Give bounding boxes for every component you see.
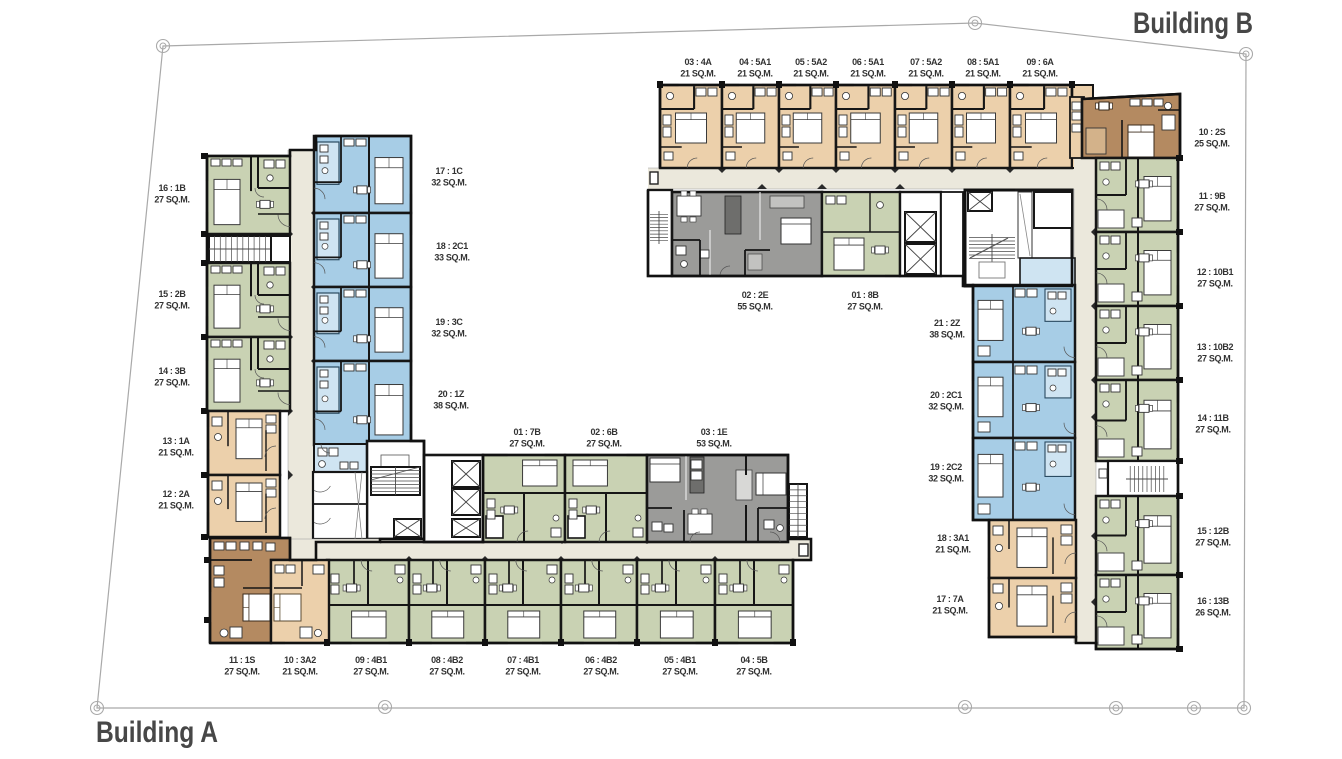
svg-text:07 : 4B1: 07 : 4B1 — [507, 655, 539, 665]
svg-text:19 : 2C2: 19 : 2C2 — [930, 462, 962, 472]
svg-text:27 SQ.M.: 27 SQ.M. — [1197, 354, 1232, 364]
svg-text:32 SQ.M.: 32 SQ.M. — [431, 329, 466, 339]
svg-text:32 SQ.M.: 32 SQ.M. — [928, 402, 963, 412]
svg-text:27 SQ.M.: 27 SQ.M. — [224, 667, 259, 677]
svg-text:01 : 7B: 01 : 7B — [513, 427, 541, 437]
svg-text:03 : 4A: 03 : 4A — [684, 57, 712, 67]
svg-text:11 : 9B: 11 : 9B — [1199, 191, 1226, 201]
svg-text:20 : 2C1: 20 : 2C1 — [930, 390, 962, 400]
svg-text:04 : 5B: 04 : 5B — [740, 655, 768, 665]
svg-text:Building A: Building A — [96, 716, 218, 749]
svg-text:27 SQ.M.: 27 SQ.M. — [505, 667, 540, 677]
svg-text:27 SQ.M.: 27 SQ.M. — [1195, 425, 1230, 435]
svg-text:32 SQ.M.: 32 SQ.M. — [431, 178, 466, 188]
svg-text:08 : 4B2: 08 : 4B2 — [431, 655, 463, 665]
svg-text:21 SQ.M.: 21 SQ.M. — [737, 69, 772, 79]
svg-text:09 : 6A: 09 : 6A — [1026, 57, 1054, 67]
svg-text:27 SQ.M.: 27 SQ.M. — [429, 667, 464, 677]
svg-text:55 SQ.M.: 55 SQ.M. — [737, 302, 772, 312]
svg-text:02 : 6B: 02 : 6B — [590, 427, 618, 437]
svg-text:21 SQ.M.: 21 SQ.M. — [965, 69, 1000, 79]
svg-text:21 SQ.M.: 21 SQ.M. — [680, 69, 715, 79]
svg-text:21 : 2Z: 21 : 2Z — [934, 318, 961, 328]
svg-text:27 SQ.M.: 27 SQ.M. — [736, 667, 771, 677]
svg-text:26 SQ.M.: 26 SQ.M. — [1195, 608, 1230, 618]
svg-text:Building B: Building B — [1133, 7, 1253, 40]
svg-text:14 : 11B: 14 : 11B — [1197, 413, 1229, 423]
svg-text:32 SQ.M.: 32 SQ.M. — [928, 474, 963, 484]
svg-text:21 SQ.M.: 21 SQ.M. — [158, 501, 193, 511]
svg-text:20 : 1Z: 20 : 1Z — [438, 389, 465, 399]
svg-text:21 SQ.M.: 21 SQ.M. — [908, 69, 943, 79]
svg-text:06 : 5A1: 06 : 5A1 — [852, 57, 884, 67]
svg-text:27 SQ.M.: 27 SQ.M. — [154, 301, 189, 311]
svg-text:12 : 2A: 12 : 2A — [162, 489, 190, 499]
svg-text:17 : 1C: 17 : 1C — [435, 166, 463, 176]
svg-text:21 SQ.M.: 21 SQ.M. — [935, 545, 970, 555]
svg-text:21 SQ.M.: 21 SQ.M. — [158, 448, 193, 458]
svg-text:19 : 3C: 19 : 3C — [435, 317, 463, 327]
svg-text:03 : 1E: 03 : 1E — [701, 427, 728, 437]
svg-text:27 SQ.M.: 27 SQ.M. — [847, 302, 882, 312]
svg-text:05 : 5A2: 05 : 5A2 — [795, 57, 827, 67]
svg-text:27 SQ.M.: 27 SQ.M. — [353, 667, 388, 677]
svg-text:01 : 8B: 01 : 8B — [851, 290, 879, 300]
svg-text:06 : 4B2: 06 : 4B2 — [585, 655, 617, 665]
svg-text:18 : 2C1: 18 : 2C1 — [436, 241, 468, 251]
svg-text:21 SQ.M.: 21 SQ.M. — [282, 667, 317, 677]
svg-text:27 SQ.M.: 27 SQ.M. — [586, 439, 621, 449]
svg-text:13 : 10B2: 13 : 10B2 — [1197, 342, 1234, 352]
svg-text:09 : 4B1: 09 : 4B1 — [355, 655, 387, 665]
svg-text:33 SQ.M.: 33 SQ.M. — [434, 253, 469, 263]
svg-text:27 SQ.M.: 27 SQ.M. — [154, 378, 189, 388]
svg-text:21 SQ.M.: 21 SQ.M. — [793, 69, 828, 79]
svg-text:16 : 1B: 16 : 1B — [158, 183, 186, 193]
svg-text:10 : 2S: 10 : 2S — [1199, 127, 1226, 137]
svg-text:15 : 2B: 15 : 2B — [158, 289, 186, 299]
svg-text:11 : 1S: 11 : 1S — [229, 655, 255, 665]
svg-text:25 SQ.M.: 25 SQ.M. — [1194, 139, 1229, 149]
svg-text:05 : 4B1: 05 : 4B1 — [664, 655, 696, 665]
svg-text:21 SQ.M.: 21 SQ.M. — [850, 69, 885, 79]
svg-text:27 SQ.M.: 27 SQ.M. — [662, 667, 697, 677]
svg-text:18 : 3A1: 18 : 3A1 — [937, 533, 969, 543]
svg-text:38 SQ.M.: 38 SQ.M. — [929, 330, 964, 340]
svg-text:53 SQ.M.: 53 SQ.M. — [696, 439, 731, 449]
svg-text:12 : 10B1: 12 : 10B1 — [1197, 267, 1234, 277]
svg-text:07 : 5A2: 07 : 5A2 — [910, 57, 942, 67]
svg-text:08 : 5A1: 08 : 5A1 — [967, 57, 999, 67]
svg-text:21 SQ.M.: 21 SQ.M. — [1022, 69, 1057, 79]
svg-text:38 SQ.M.: 38 SQ.M. — [433, 401, 468, 411]
svg-text:16 : 13B: 16 : 13B — [1197, 596, 1230, 606]
svg-text:17 : 7A: 17 : 7A — [936, 594, 964, 604]
svg-text:04 : 5A1: 04 : 5A1 — [739, 57, 771, 67]
svg-text:27 SQ.M.: 27 SQ.M. — [1195, 538, 1230, 548]
svg-text:27 SQ.M.: 27 SQ.M. — [583, 667, 618, 677]
svg-text:02 : 2E: 02 : 2E — [742, 290, 769, 300]
svg-text:10 : 3A2: 10 : 3A2 — [284, 655, 316, 665]
svg-text:27 SQ.M.: 27 SQ.M. — [1194, 203, 1229, 213]
svg-text:21 SQ.M.: 21 SQ.M. — [932, 606, 967, 616]
svg-text:27 SQ.M.: 27 SQ.M. — [509, 439, 544, 449]
svg-text:15 : 12B: 15 : 12B — [1197, 526, 1230, 536]
svg-text:27 SQ.M.: 27 SQ.M. — [154, 195, 189, 205]
svg-text:27 SQ.M.: 27 SQ.M. — [1197, 279, 1232, 289]
svg-text:14 : 3B: 14 : 3B — [158, 366, 186, 376]
svg-text:13 : 1A: 13 : 1A — [162, 436, 190, 446]
